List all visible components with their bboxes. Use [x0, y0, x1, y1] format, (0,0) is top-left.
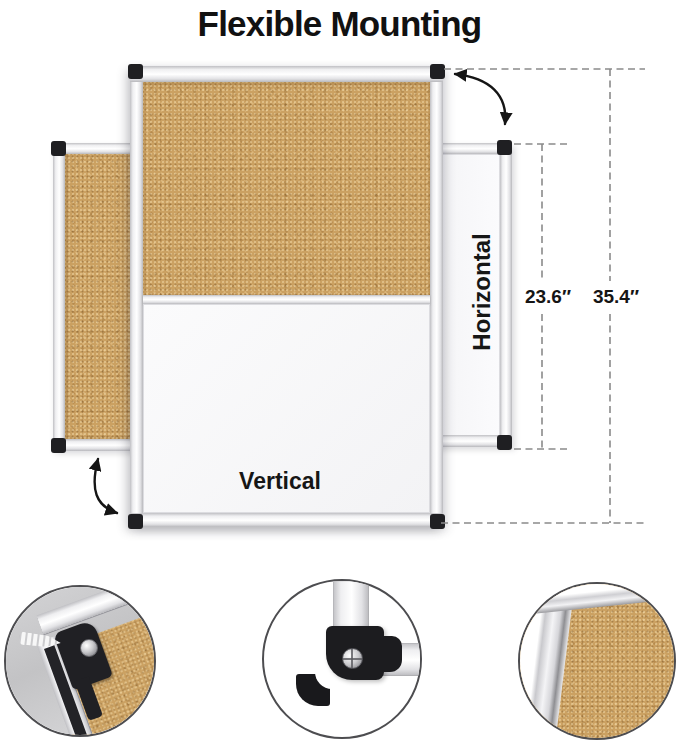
board-frame-top	[130, 66, 443, 82]
detail-circle-cork-closeup	[518, 582, 676, 740]
product-diagram: Flexible Mounting	[0, 0, 679, 743]
board-frame-bottom	[130, 513, 443, 527]
corner-cap-icon	[51, 438, 66, 453]
board-frame-left	[130, 66, 143, 527]
board-main-combo	[130, 66, 443, 527]
screw-icon	[342, 648, 363, 669]
rotate-arrow-left-icon	[95, 459, 117, 513]
divider-bar	[143, 295, 430, 304]
screw-icon	[80, 639, 98, 657]
corner-cap-icon	[128, 64, 143, 79]
corner-cap-icon	[497, 140, 512, 155]
vertical-label: Vertical	[239, 468, 321, 495]
rotate-arrow-top-icon	[455, 74, 505, 124]
dimension-label-23-6: 23.6″	[523, 286, 573, 308]
corner-cap-icon	[51, 141, 66, 156]
horizontal-label: Horizontal	[468, 233, 496, 350]
page-title: Flexible Mounting	[0, 4, 679, 44]
corner-cap-piece	[296, 674, 330, 706]
detail-circle-wall-anchor	[4, 585, 156, 737]
board-frame-top	[53, 143, 141, 154]
board-frame-right	[430, 66, 443, 527]
corner-cap-icon	[430, 64, 445, 79]
corner-cap-icon	[128, 514, 143, 529]
corner-cap-icon	[430, 514, 445, 529]
board-frame-right	[500, 143, 512, 447]
dimension-label-35-4: 35.4″	[591, 286, 641, 308]
corner-bracket-wing	[376, 636, 402, 672]
board-frame-left	[53, 143, 65, 451]
detail-circle-corner-bracket	[262, 579, 422, 739]
board-left-cork	[53, 143, 141, 451]
corner-cap-icon	[497, 435, 512, 450]
cork-panel	[143, 82, 430, 295]
board-frame-bottom	[53, 439, 141, 451]
